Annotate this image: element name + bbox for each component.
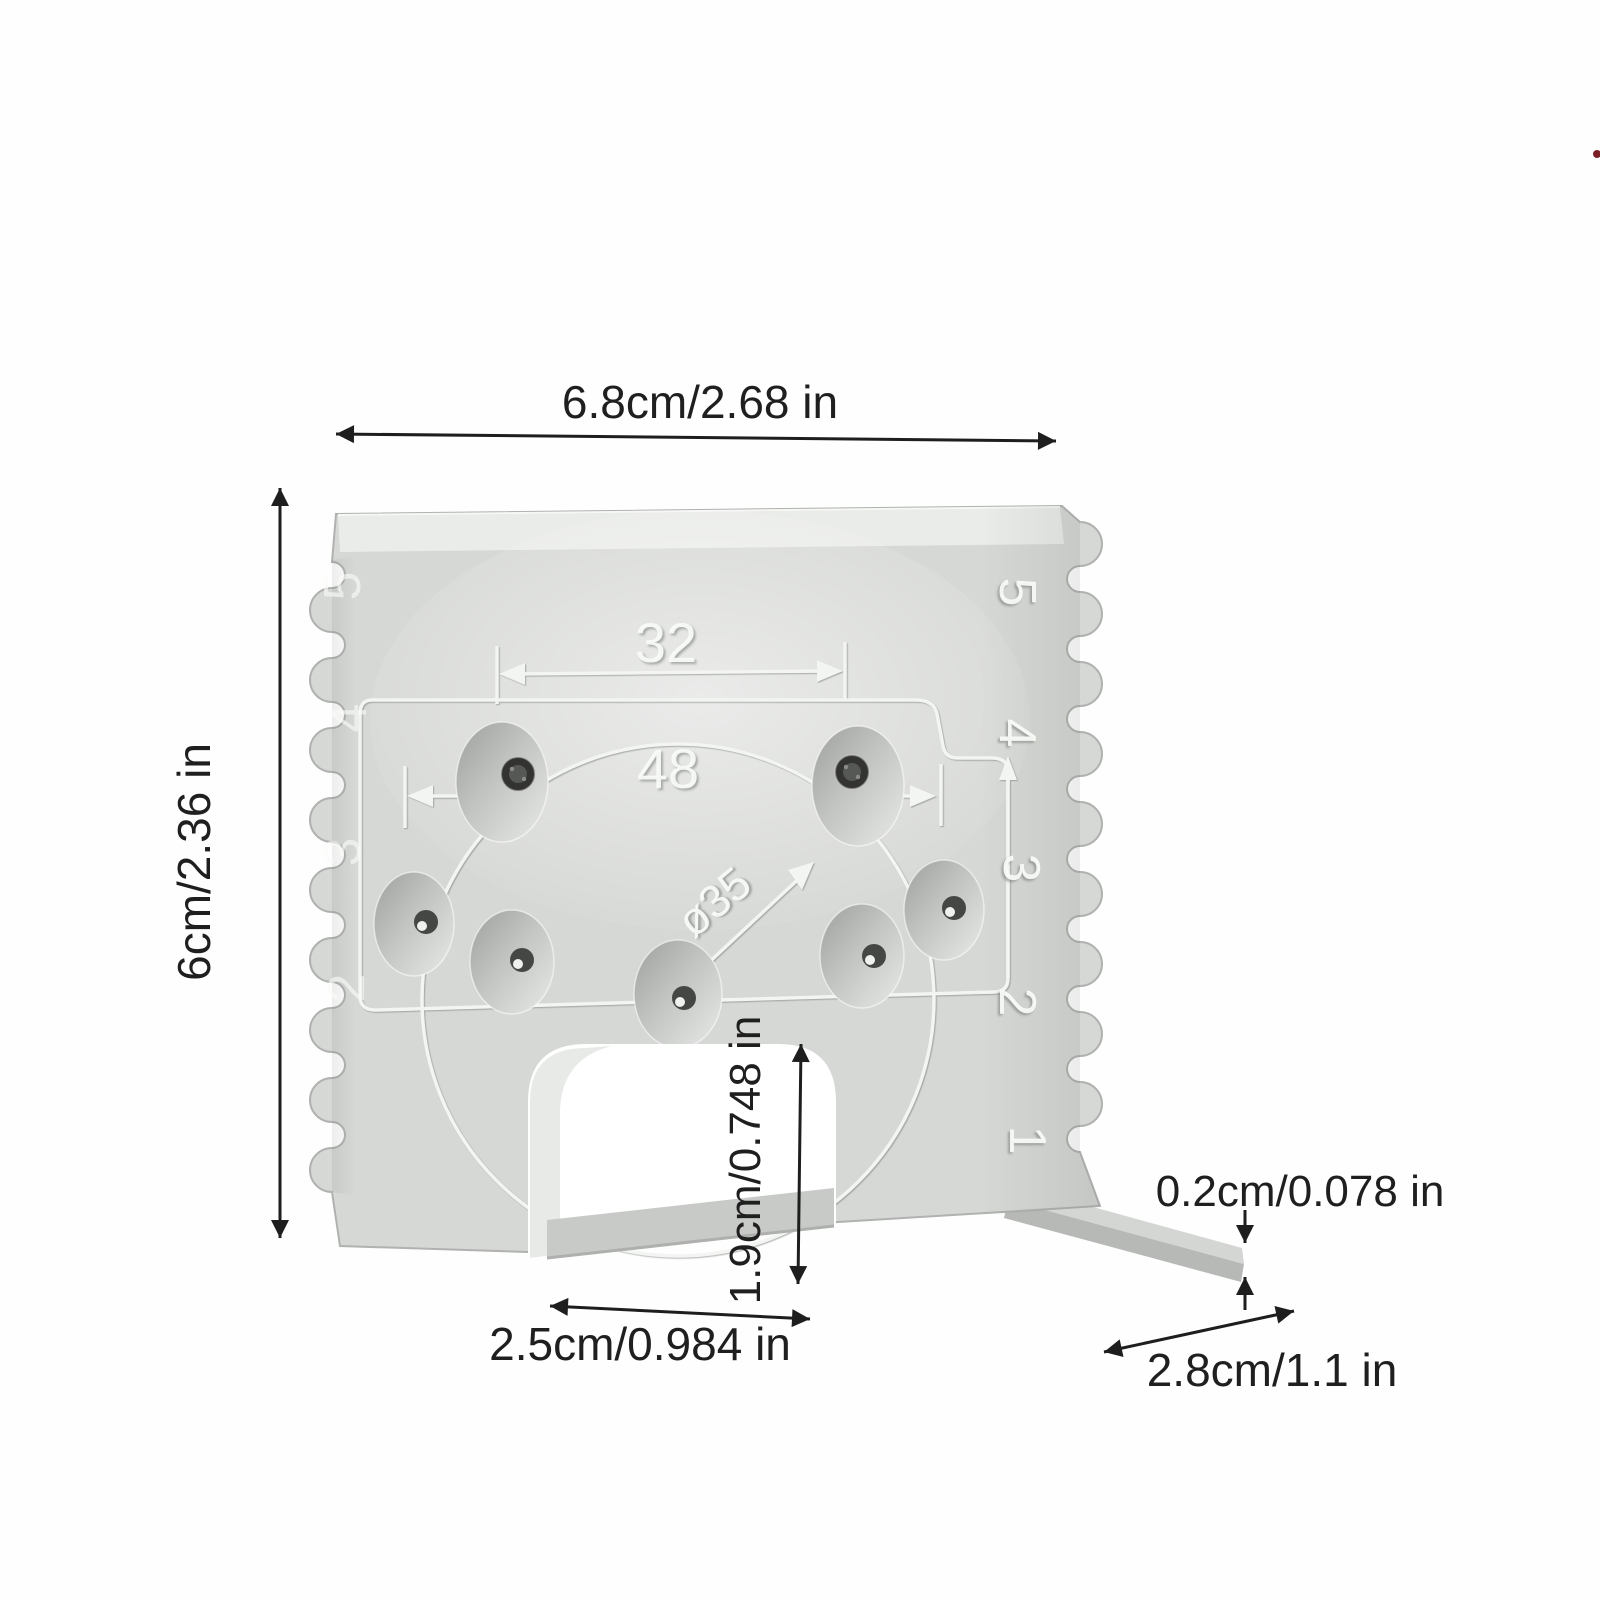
red-speck: [1593, 150, 1600, 158]
scale-number: 3: [992, 854, 1050, 883]
hole-inner-right: [820, 904, 904, 1008]
scale-number: 1: [998, 1126, 1056, 1155]
scale-number: 5: [988, 578, 1046, 607]
dim-thickness-label: 0.2cm/0.078 in: [1156, 1167, 1445, 1216]
screw-head: [501, 757, 535, 791]
scale-number: 2: [318, 974, 376, 1003]
scale-number: 3: [314, 838, 372, 867]
hole-inner-left: [470, 910, 554, 1014]
hole-bottom-center: [634, 940, 722, 1048]
screw-head: [835, 755, 869, 789]
scale-number: 2: [988, 988, 1046, 1017]
u-cutout: [528, 1044, 836, 1260]
dim-top-width-label: 6.8cm/2.68 in: [562, 376, 838, 428]
dim-base-depth-label: 2.8cm/1.1 in: [1147, 1344, 1398, 1396]
dim-opening-height-label: 1.9cm/0.748 in: [721, 1016, 770, 1305]
hole-far-right: [904, 860, 984, 960]
scale-number: 5: [314, 572, 372, 601]
left-edge-shade: [332, 556, 356, 1196]
jig-product: 32 48 ø35 5 4 3 2 1 5 4 3 2: [310, 506, 1244, 1282]
product-dimension-diagram: 32 48 ø35 5 4 3 2 1 5 4 3 2: [0, 0, 1600, 1600]
jig-diagram-canvas: 32 48 ø35 5 4 3 2 1 5 4 3 2: [0, 0, 1600, 1600]
dim-opening-width-label: 2.5cm/0.984 in: [489, 1318, 791, 1370]
hole-top-left: [456, 722, 548, 842]
hole-top-right: [812, 726, 904, 846]
engraved-48-label: 48: [637, 737, 699, 800]
hole-mid-left: [374, 872, 454, 976]
engraved-32-label: 32: [635, 611, 697, 674]
dim-left-height-label: 6cm/2.36 in: [168, 743, 220, 981]
dim-top-width-arrow: [336, 434, 1056, 441]
scale-number: 4: [320, 704, 378, 733]
scale-number: 4: [988, 719, 1046, 748]
